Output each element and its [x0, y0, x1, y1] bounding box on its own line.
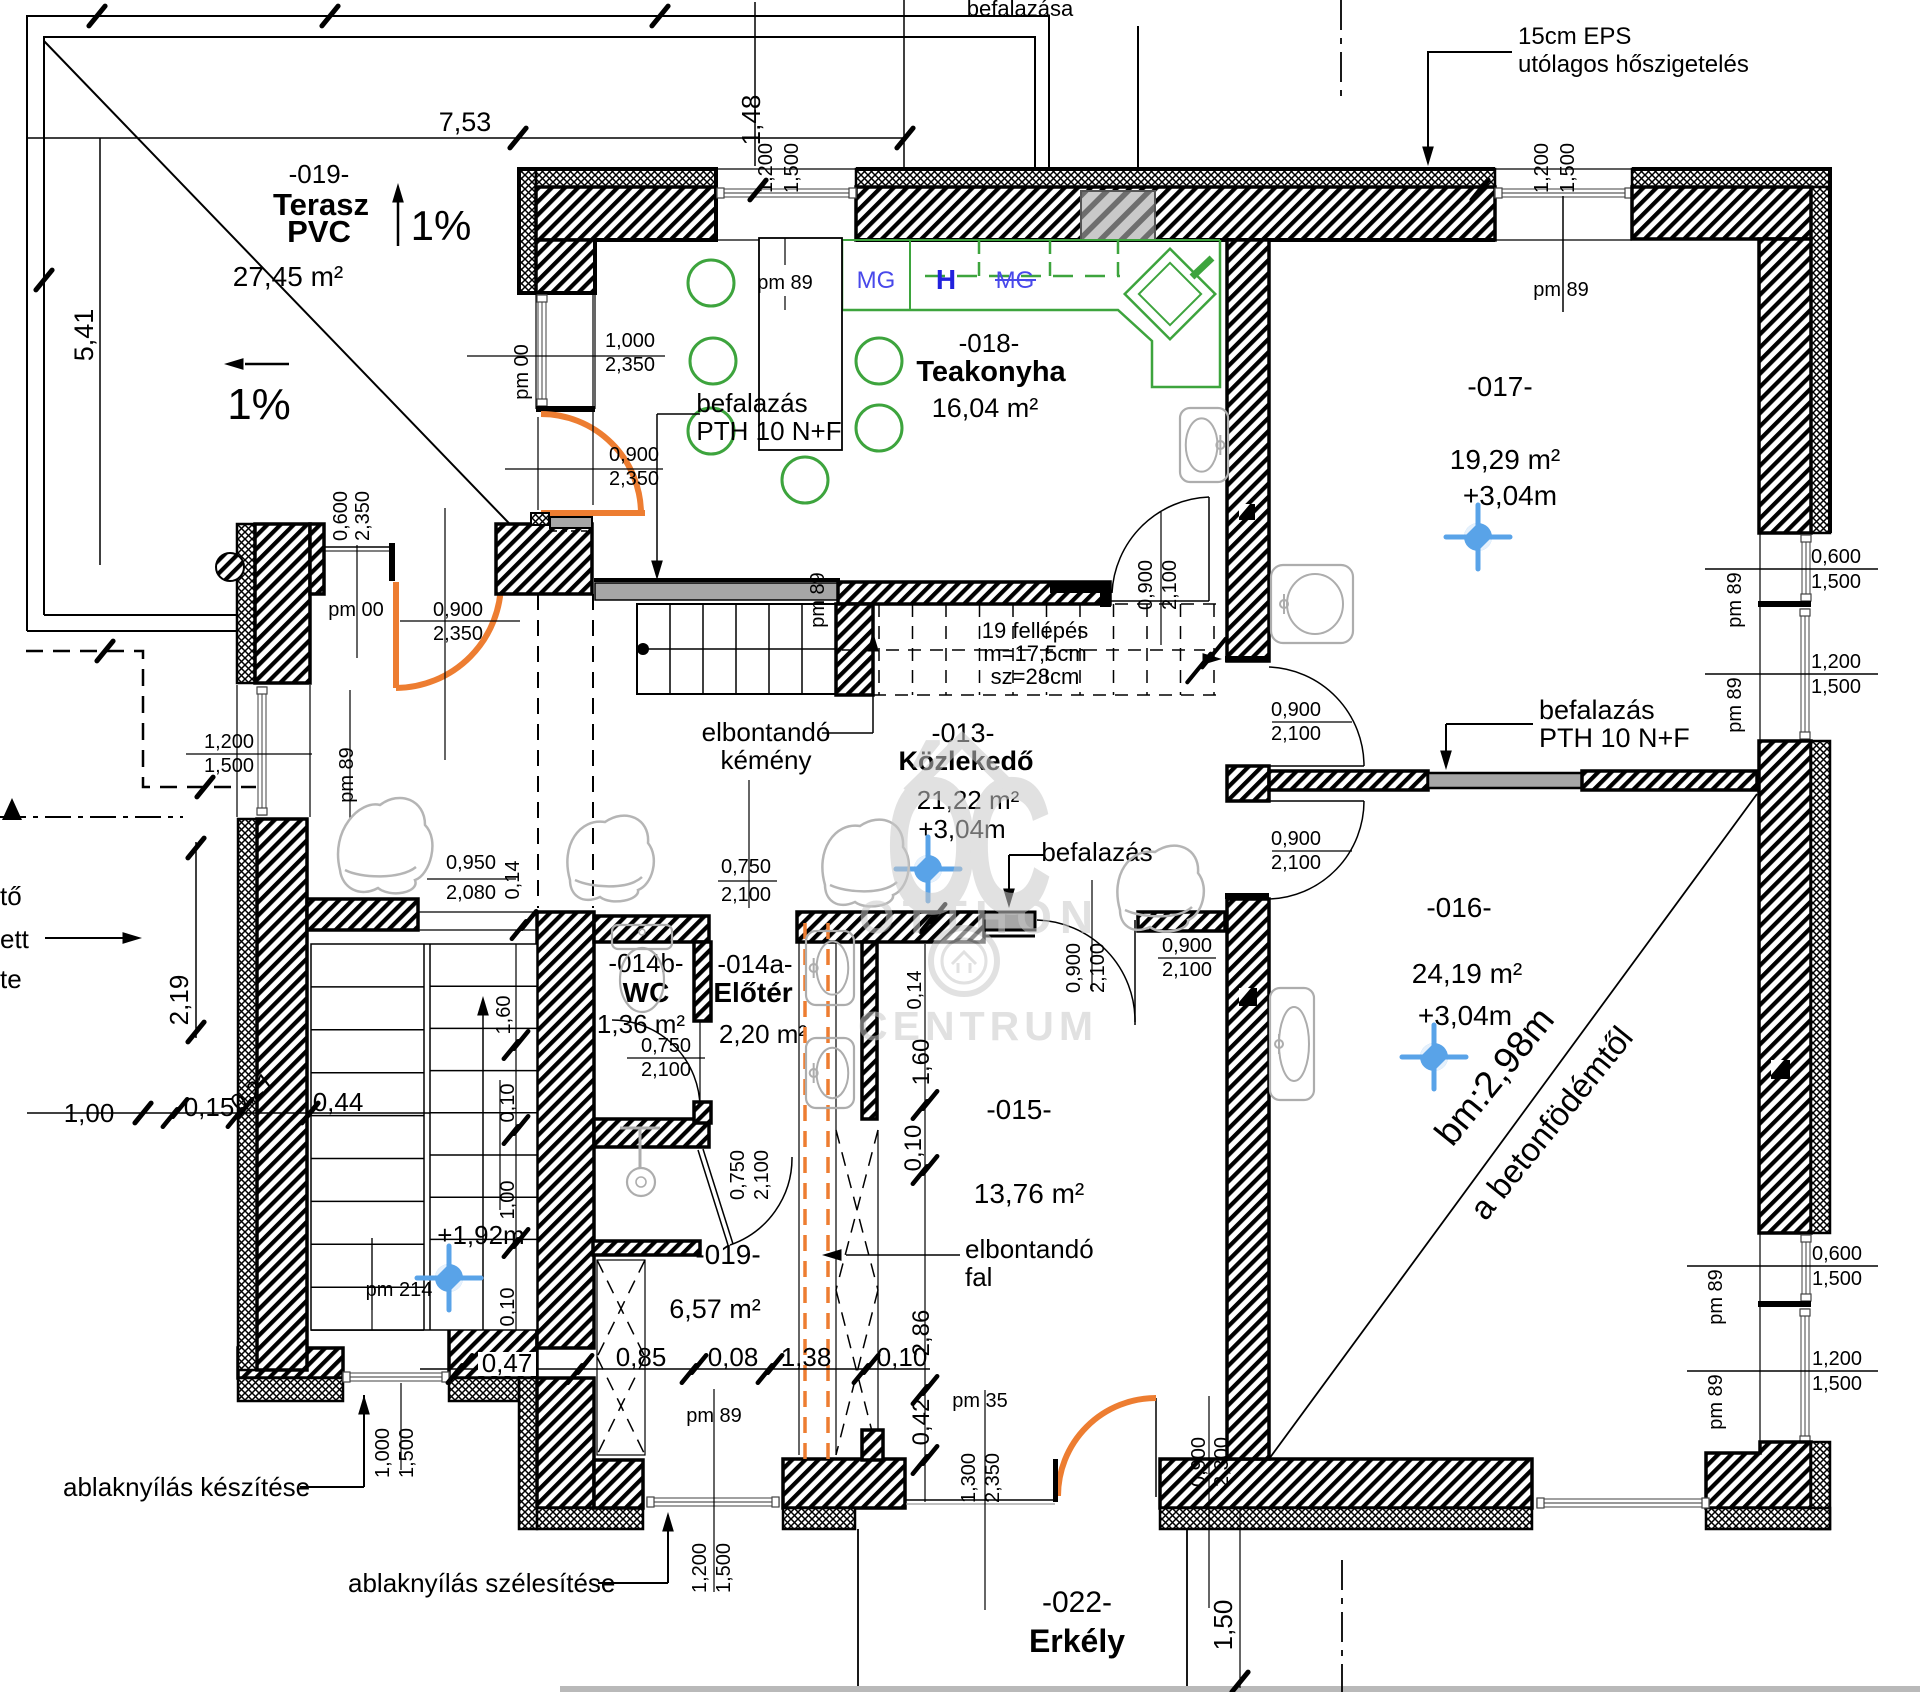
- svg-text:pm 89: pm 89: [757, 272, 813, 294]
- svg-text:pm 35: pm 35: [952, 1390, 1008, 1412]
- svg-text:1,38: 1,38: [781, 1342, 832, 1372]
- svg-text:1,500: 1,500: [1812, 1268, 1862, 1290]
- svg-text:pm 89: pm 89: [1705, 1269, 1727, 1325]
- svg-text:5,41: 5,41: [69, 309, 99, 362]
- svg-text:pm 89: pm 89: [807, 572, 829, 628]
- svg-text:CENTRUM: CENTRUM: [858, 1003, 1098, 1049]
- svg-text:0,14: 0,14: [502, 861, 524, 900]
- svg-text:2,100: 2,100: [1271, 723, 1321, 745]
- svg-text:2,350: 2,350: [609, 468, 659, 490]
- svg-text:0,900: 0,900: [1063, 943, 1085, 993]
- svg-text:1,50: 1,50: [1208, 1600, 1238, 1651]
- svg-text:2,86: 2,86: [908, 1310, 935, 1357]
- svg-text:ablaknyílás szélesítése: ablaknyílás szélesítése: [348, 1568, 615, 1598]
- svg-text:1,200: 1,200: [1812, 1348, 1862, 1370]
- svg-text:0,900: 0,900: [433, 599, 483, 621]
- svg-text:tő: tő: [0, 881, 22, 911]
- svg-text:1,000: 1,000: [605, 330, 655, 352]
- svg-text:19 fellépés: 19 fellépés: [982, 618, 1088, 643]
- svg-text:1,500: 1,500: [1811, 571, 1861, 593]
- svg-text:pm 00: pm 00: [511, 344, 533, 400]
- svg-text:0,900: 0,900: [1162, 935, 1212, 957]
- svg-text:1,500: 1,500: [1812, 1373, 1862, 1395]
- svg-text:fal: fal: [965, 1262, 992, 1292]
- svg-text:ablaknyílás készítése: ablaknyílás készítése: [63, 1472, 310, 1502]
- svg-text:1,200: 1,200: [1811, 651, 1861, 673]
- svg-text:0,10: 0,10: [900, 1125, 927, 1172]
- svg-text:befalazás: befalazás: [696, 388, 807, 418]
- svg-text:2,100: 2,100: [1087, 943, 1109, 993]
- svg-text:0,85: 0,85: [616, 1342, 667, 1372]
- svg-text:-015-: -015-: [986, 1094, 1051, 1125]
- svg-text:pm 89: pm 89: [336, 747, 358, 803]
- svg-text:PTH 10 N+F: PTH 10 N+F: [696, 416, 841, 446]
- svg-text:2,350: 2,350: [352, 491, 374, 541]
- svg-text:0,10: 0,10: [497, 1288, 519, 1327]
- svg-text:1,200: 1,200: [755, 143, 777, 193]
- svg-text:te: te: [0, 964, 22, 994]
- svg-text:2,100: 2,100: [1162, 959, 1212, 981]
- svg-text:13,76 m²: 13,76 m²: [974, 1178, 1085, 1209]
- svg-text:7,53: 7,53: [439, 107, 492, 137]
- svg-text:27,45 m²: 27,45 m²: [233, 261, 344, 292]
- svg-text:0,900: 0,900: [1135, 560, 1157, 610]
- svg-text:Előtér: Előtér: [713, 977, 792, 1008]
- svg-text:1,500: 1,500: [713, 1543, 735, 1593]
- svg-text:1%: 1%: [411, 202, 472, 249]
- svg-text:2,20 m²: 2,20 m²: [719, 1019, 807, 1049]
- svg-text:19,29 m²: 19,29 m²: [1450, 444, 1561, 475]
- svg-text:0,900: 0,900: [1271, 699, 1321, 721]
- svg-text:1,200: 1,200: [204, 731, 254, 753]
- svg-text:befalazás: befalazás: [1041, 837, 1152, 867]
- svg-text:2,100: 2,100: [1159, 560, 1181, 610]
- svg-text:ett: ett: [0, 924, 30, 954]
- svg-text:PVC: PVC: [287, 214, 351, 249]
- svg-text:1,00: 1,00: [497, 1181, 519, 1220]
- svg-text:0,08: 0,08: [708, 1342, 759, 1372]
- svg-text:elbontandó: elbontandó: [702, 717, 831, 747]
- svg-text:H: H: [936, 264, 956, 295]
- svg-text:15cm EPS: 15cm EPS: [1518, 23, 1631, 50]
- svg-text:0,900: 0,900: [1271, 828, 1321, 850]
- svg-text:-019-: -019-: [695, 1239, 760, 1270]
- svg-text:MG: MG: [857, 267, 896, 294]
- svg-text:2,350: 2,350: [433, 623, 483, 645]
- svg-text:0,750: 0,750: [727, 1150, 749, 1200]
- svg-text:6,57 m²: 6,57 m²: [669, 1294, 761, 1324]
- svg-text:2,19: 2,19: [164, 975, 194, 1026]
- svg-text:1,500: 1,500: [204, 755, 254, 777]
- svg-text:2,350: 2,350: [982, 1453, 1004, 1503]
- svg-text:2,100: 2,100: [721, 884, 771, 906]
- svg-text:1,200: 1,200: [689, 1543, 711, 1593]
- svg-text:0,600: 0,600: [330, 491, 352, 541]
- svg-text:1,36 m²: 1,36 m²: [597, 1009, 685, 1039]
- svg-text:0,47: 0,47: [482, 1348, 533, 1378]
- svg-text:2,350: 2,350: [605, 354, 655, 376]
- svg-text:0,600: 0,600: [1811, 546, 1861, 568]
- svg-text:1,500: 1,500: [1557, 143, 1579, 193]
- svg-text:-017-: -017-: [1467, 371, 1532, 402]
- svg-text:Teakonyha: Teakonyha: [916, 356, 1066, 388]
- svg-text:pm 214: pm 214: [366, 1279, 433, 1301]
- svg-text:Erkély: Erkély: [1029, 1623, 1125, 1659]
- svg-text:-016-: -016-: [1426, 892, 1491, 923]
- svg-text:1,200: 1,200: [1531, 143, 1553, 193]
- svg-text:1,000: 1,000: [372, 1428, 394, 1478]
- svg-text:0,600: 0,600: [1812, 1243, 1862, 1265]
- svg-text:2,100: 2,100: [641, 1059, 691, 1081]
- svg-text:0,900: 0,900: [1188, 1437, 1210, 1487]
- svg-text:16,04 m²: 16,04 m²: [932, 393, 1039, 423]
- svg-text:utólagos hőszigetelés: utólagos hőszigetelés: [1518, 51, 1749, 78]
- svg-text:-022-: -022-: [1042, 1586, 1112, 1619]
- svg-text:-019-: -019-: [289, 159, 350, 189]
- svg-text:1,48: 1,48: [736, 95, 766, 146]
- svg-text:0,950: 0,950: [446, 852, 496, 874]
- svg-text:sz=28cm: sz=28cm: [991, 664, 1080, 689]
- svg-text:pm 89: pm 89: [1724, 572, 1746, 628]
- svg-text:pm 89: pm 89: [1533, 279, 1589, 301]
- svg-text:1,500: 1,500: [1811, 676, 1861, 698]
- svg-text:2,100: 2,100: [751, 1150, 773, 1200]
- svg-text:PTH 10 N+F: PTH 10 N+F: [1539, 723, 1690, 753]
- svg-text:befalazás: befalazás: [1539, 695, 1655, 725]
- svg-text:2,080: 2,080: [446, 882, 496, 904]
- svg-text:24,19 m²: 24,19 m²: [1412, 958, 1523, 989]
- svg-text:1,300: 1,300: [958, 1453, 980, 1503]
- svg-text:1,500: 1,500: [781, 143, 803, 193]
- svg-text:-018-: -018-: [959, 328, 1020, 358]
- svg-text:1%: 1%: [227, 380, 291, 429]
- svg-text:0,750: 0,750: [721, 856, 771, 878]
- svg-text:pm 00: pm 00: [328, 599, 384, 621]
- svg-text:m=17,5cm: m=17,5cm: [983, 641, 1086, 666]
- svg-text:befalazása: befalazása: [967, 0, 1074, 21]
- svg-text:0,10: 0,10: [497, 1084, 519, 1123]
- svg-text:0,900: 0,900: [609, 444, 659, 466]
- svg-text:kémény: kémény: [720, 745, 811, 775]
- svg-text:1,00: 1,00: [64, 1098, 115, 1128]
- svg-text:1,500: 1,500: [396, 1428, 418, 1478]
- svg-text:pm 89: pm 89: [1705, 1374, 1727, 1430]
- svg-text:2,100: 2,100: [1271, 852, 1321, 874]
- svg-text:-014a-: -014a-: [717, 949, 792, 979]
- svg-text:elbontandó: elbontandó: [965, 1234, 1094, 1264]
- svg-text:pm 89: pm 89: [1724, 677, 1746, 733]
- svg-text:1,60: 1,60: [493, 996, 515, 1035]
